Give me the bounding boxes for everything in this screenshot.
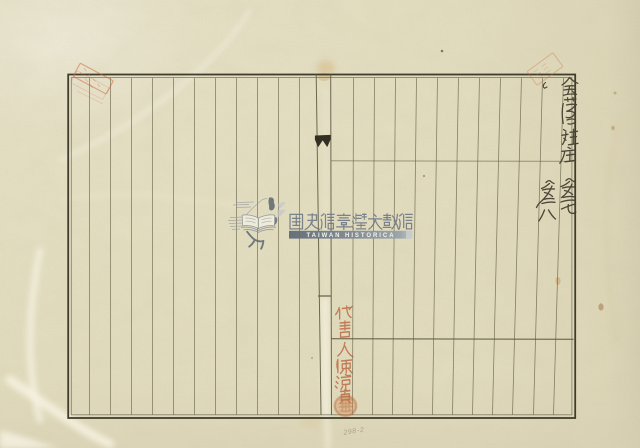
- svg-text:TAIWAN HISTORICA: TAIWAN HISTORICA: [307, 233, 396, 239]
